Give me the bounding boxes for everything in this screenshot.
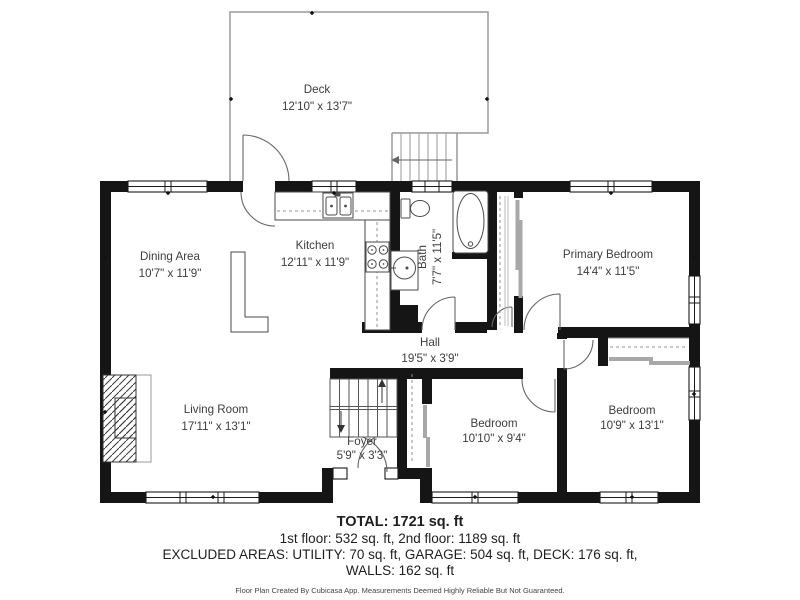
- living-room-dims: 17'11" x 13'1": [181, 420, 250, 433]
- area-summary: TOTAL: 1721 sq. ft 1st floor: 532 sq. ft…: [0, 514, 800, 595]
- sliding-door: [423, 405, 430, 467]
- bedroom2-dims: 10'9" x 13'1": [600, 419, 664, 432]
- entry-sidelight: [333, 468, 347, 479]
- window: [312, 181, 356, 192]
- bedroom1-dims: 10'10" x 9'4": [462, 432, 526, 445]
- deck-label: Deck: [304, 83, 331, 96]
- bath-door: [422, 297, 455, 330]
- window: [600, 492, 658, 503]
- living-room-label: Living Room: [184, 403, 248, 416]
- dining-dims: 10'7" x 11'9": [139, 267, 202, 280]
- kitchen-label: Kitchen: [296, 239, 335, 252]
- deck-dims: 12'10" x 13'7": [282, 100, 352, 113]
- deck-outline: [230, 12, 488, 185]
- primary-bedroom-dims: 14'4" x 11'5": [577, 265, 640, 278]
- hall-dims: 19'5" x 3'9": [401, 352, 458, 365]
- bedroom2-label: Bedroom: [608, 404, 655, 417]
- bath-label: Bath: [416, 245, 429, 269]
- disclaimer: Floor Plan Created By Cubicasa App. Meas…: [0, 586, 800, 595]
- window: [689, 276, 700, 324]
- window: [412, 181, 452, 192]
- toilet: [401, 199, 430, 218]
- bedroom1-label: Bedroom: [470, 417, 517, 430]
- stove: [366, 242, 389, 272]
- primary-bedroom-door: [524, 294, 560, 330]
- staircase: [330, 379, 397, 437]
- hall-label: Hall: [420, 336, 440, 349]
- window: [570, 181, 652, 192]
- window: [146, 492, 259, 503]
- excluded-areas: EXCLUDED AREAS: UTILITY: 70 sq. ft, GARA…: [0, 547, 800, 563]
- bedroom2-closet: [608, 338, 689, 347]
- hall-closet: [500, 196, 508, 326]
- kitchen-island: [231, 252, 268, 332]
- floor-plan: Deck 12'10" x 13'7" Dining Area 10'7" x …: [0, 0, 800, 512]
- bath-vanity: [391, 251, 418, 290]
- total-area: TOTAL: 1721 sq. ft: [0, 514, 800, 531]
- window: [128, 181, 207, 192]
- windows: [128, 181, 700, 503]
- primary-bedroom-label: Primary Bedroom: [563, 248, 653, 261]
- walls-area: WALLS: 162 sq. ft: [0, 563, 800, 579]
- deck-stairs: [391, 133, 452, 185]
- foyer-label: Foyer: [347, 435, 377, 448]
- bathtub: [453, 191, 488, 253]
- fireplace: [103, 375, 151, 462]
- sliding-door: [609, 357, 690, 365]
- bath-dims: 7'7" x 11'5": [431, 229, 444, 285]
- walls: [100, 181, 700, 503]
- kitchen-dims: 12'11" x 11'9": [281, 256, 349, 269]
- sliding-door: [516, 200, 523, 298]
- chimney: [388, 305, 418, 333]
- kitchen-sink: [323, 193, 353, 219]
- floor-areas: 1st floor: 532 sq. ft, 2nd floor: 1189 s…: [0, 531, 800, 547]
- bedroom2-door: [564, 340, 593, 369]
- foyer-dims: 5'9" x 3'3": [337, 449, 388, 462]
- dining-label: Dining Area: [140, 250, 200, 263]
- bedroom1-door: [522, 379, 555, 412]
